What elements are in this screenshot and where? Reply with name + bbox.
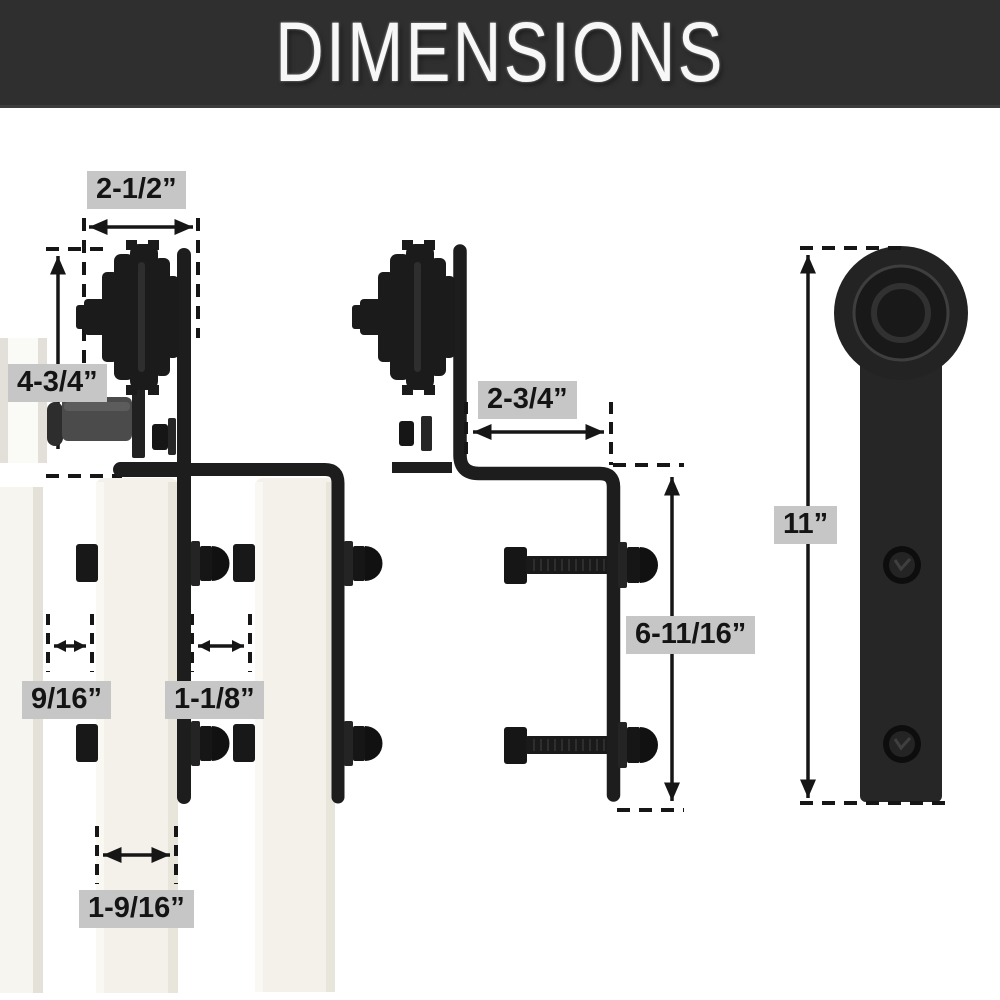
- hanger-wheel: [834, 246, 968, 380]
- bolt-square-head: [76, 544, 98, 582]
- dim-door-gap: [192, 614, 250, 672]
- bolt-hex-head: [504, 547, 527, 584]
- dim-label-bracket-offset: 2-3/4”: [478, 381, 577, 419]
- through-bolt-top: [504, 547, 610, 584]
- bolt-dome-nut: [640, 547, 658, 583]
- middle-side-view: [352, 240, 684, 810]
- strap-bolt-bottom: [883, 725, 921, 763]
- through-bolt-nuts: [618, 542, 658, 768]
- bolt-dome-nut: [365, 546, 383, 581]
- dim-label-hanger-height: 11”: [774, 506, 837, 544]
- dim-label-roller-height: 4-3/4”: [8, 364, 107, 402]
- middle-roller-wheel: [352, 240, 455, 395]
- set-bolt-washer: [421, 416, 432, 451]
- set-bolt-head: [399, 421, 414, 446]
- dim-label-strap-drop: 6-11/16”: [626, 616, 755, 654]
- hanger-strap-front-door: [177, 248, 191, 804]
- z-offset-bracket: [460, 251, 614, 795]
- bolt-dome-nut: [212, 546, 230, 581]
- bolt-square-head: [233, 724, 255, 762]
- j-hook-arm: [392, 462, 452, 473]
- bolt-dome-nut: [212, 726, 230, 761]
- spacer-flange: [47, 402, 63, 446]
- dim-label-door-thickness: 1-9/16”: [79, 890, 194, 928]
- dim-label-door-gap: 1-1/8”: [165, 681, 264, 719]
- dim-wall-gap: [48, 614, 92, 672]
- door-panel-back: [255, 478, 335, 992]
- bolt-hex-head: [504, 727, 527, 764]
- wall-board-lower: [0, 487, 43, 993]
- dim-label-wall-gap: 9/16”: [22, 681, 111, 719]
- left-side-view: [0, 218, 383, 993]
- strap-bolt-top: [883, 546, 921, 584]
- set-bolt-head: [152, 424, 168, 450]
- bolt-square-head: [233, 544, 255, 582]
- bolt-dome-nut: [640, 727, 658, 763]
- hardware-diagram-canvas: [0, 0, 1000, 1000]
- set-bolt-washer: [168, 418, 176, 455]
- spacer-highlight: [64, 402, 130, 411]
- dim-label-roller-width: 2-1/2”: [87, 171, 186, 209]
- bolt-dome-nut: [365, 726, 383, 761]
- dimensions-diagram-page: DIMENSIONS: [0, 0, 1000, 1000]
- through-bolt-bottom: [504, 727, 610, 764]
- bolt-square-head: [76, 724, 98, 762]
